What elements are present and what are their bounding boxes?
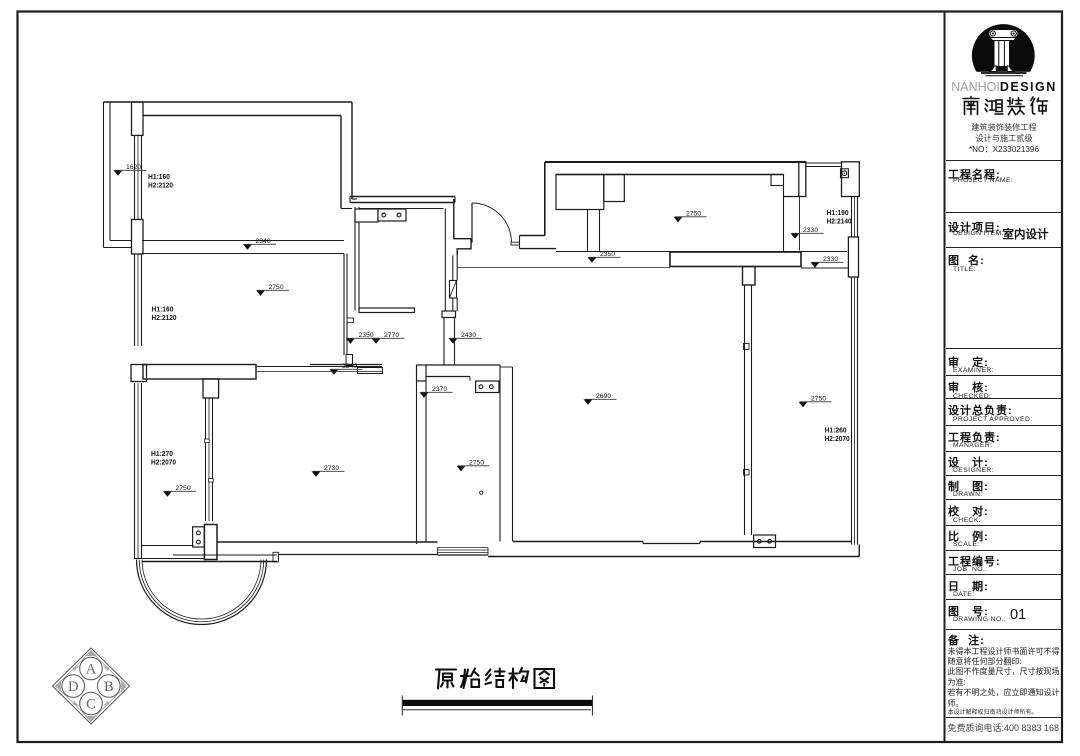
svg-text:2330: 2330 bbox=[823, 256, 838, 263]
svg-text:2350: 2350 bbox=[359, 332, 374, 339]
svg-text:2690: 2690 bbox=[596, 393, 611, 400]
svg-text:H1:270: H1:270 bbox=[151, 451, 173, 458]
svg-text:2750: 2750 bbox=[176, 485, 191, 492]
svg-text:H2:2070: H2:2070 bbox=[151, 459, 176, 466]
svg-text:2750: 2750 bbox=[269, 284, 284, 291]
svg-text:2750: 2750 bbox=[469, 459, 484, 466]
svg-text:A: A bbox=[86, 662, 97, 678]
svg-text:1620: 1620 bbox=[126, 164, 141, 171]
svg-text:H1:160: H1:160 bbox=[148, 174, 170, 181]
svg-text:2730: 2730 bbox=[324, 465, 339, 472]
svg-text:H2:2140: H2:2140 bbox=[827, 218, 852, 225]
svg-text:H2:2120: H2:2120 bbox=[148, 182, 173, 189]
svg-text:H2:2070: H2:2070 bbox=[825, 436, 850, 443]
svg-text:2770: 2770 bbox=[384, 332, 399, 339]
svg-text:2340: 2340 bbox=[256, 238, 271, 245]
svg-text:B: B bbox=[104, 679, 114, 695]
svg-text:2750: 2750 bbox=[686, 210, 701, 217]
svg-text:2330: 2330 bbox=[803, 227, 818, 234]
svg-text:D: D bbox=[68, 679, 78, 695]
svg-text:2430: 2430 bbox=[461, 332, 476, 339]
svg-text:2370: 2370 bbox=[432, 386, 447, 393]
svg-text:2750: 2750 bbox=[811, 395, 826, 402]
svg-text:2350: 2350 bbox=[600, 251, 615, 258]
svg-text:H1:190: H1:190 bbox=[827, 210, 849, 217]
svg-text:H1:260: H1:260 bbox=[825, 428, 847, 435]
svg-text:C: C bbox=[86, 697, 96, 713]
svg-text:H2:2120: H2:2120 bbox=[152, 315, 177, 322]
svg-text:H1:160: H1:160 bbox=[152, 307, 174, 314]
svg-text:2340: 2340 bbox=[342, 363, 357, 370]
